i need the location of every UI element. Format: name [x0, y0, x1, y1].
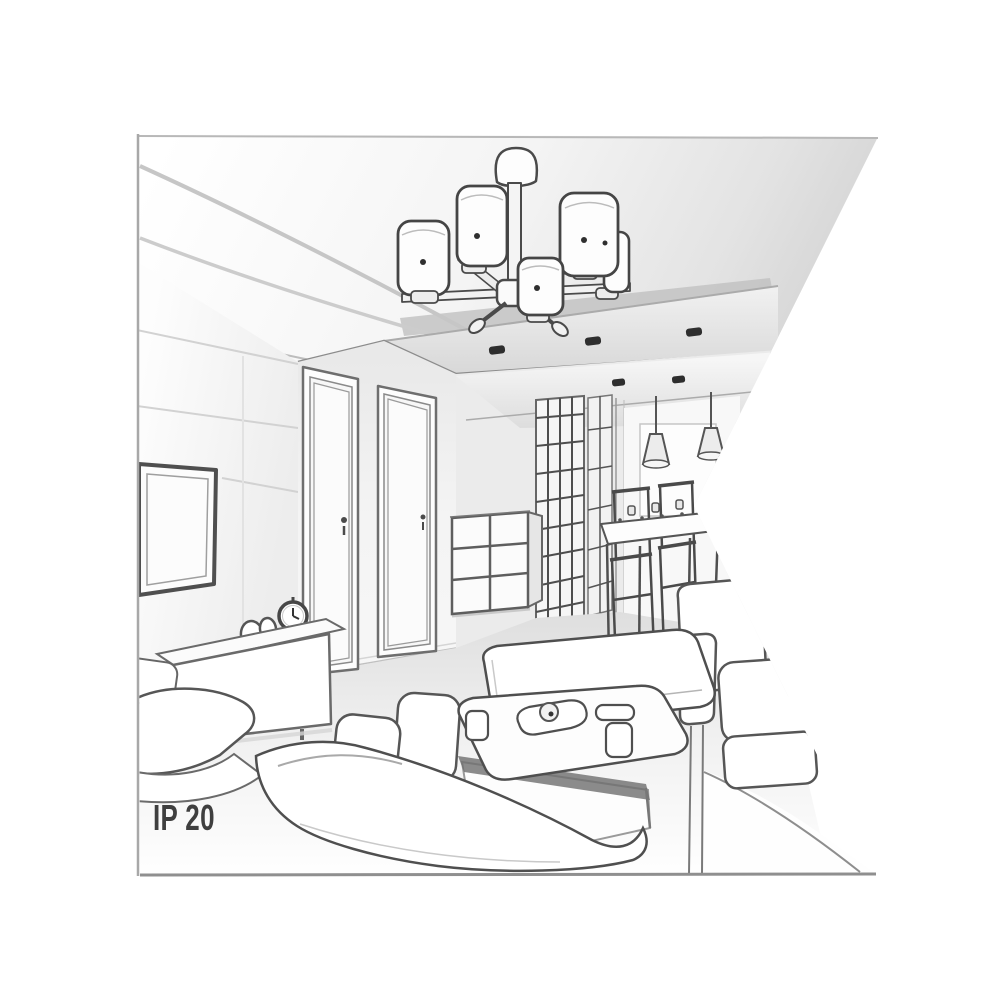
room-illustration — [0, 0, 1000, 1000]
lamp-shade — [398, 221, 449, 295]
wardrobe-lattice — [536, 396, 584, 628]
plate — [596, 705, 634, 720]
cup — [606, 723, 632, 757]
lamp-shade — [457, 186, 507, 266]
lamp-shade — [518, 258, 563, 315]
lamp-shade — [560, 193, 618, 276]
ip-rating-label: IP 20 — [153, 800, 215, 836]
door-2 — [378, 386, 436, 657]
cup — [466, 711, 488, 740]
drawer-cabinet — [450, 511, 542, 616]
pastry — [540, 703, 558, 721]
chandelier-canopy — [496, 148, 537, 186]
product-context-image: IP 20 — [0, 0, 1000, 1000]
tv — [139, 464, 216, 595]
